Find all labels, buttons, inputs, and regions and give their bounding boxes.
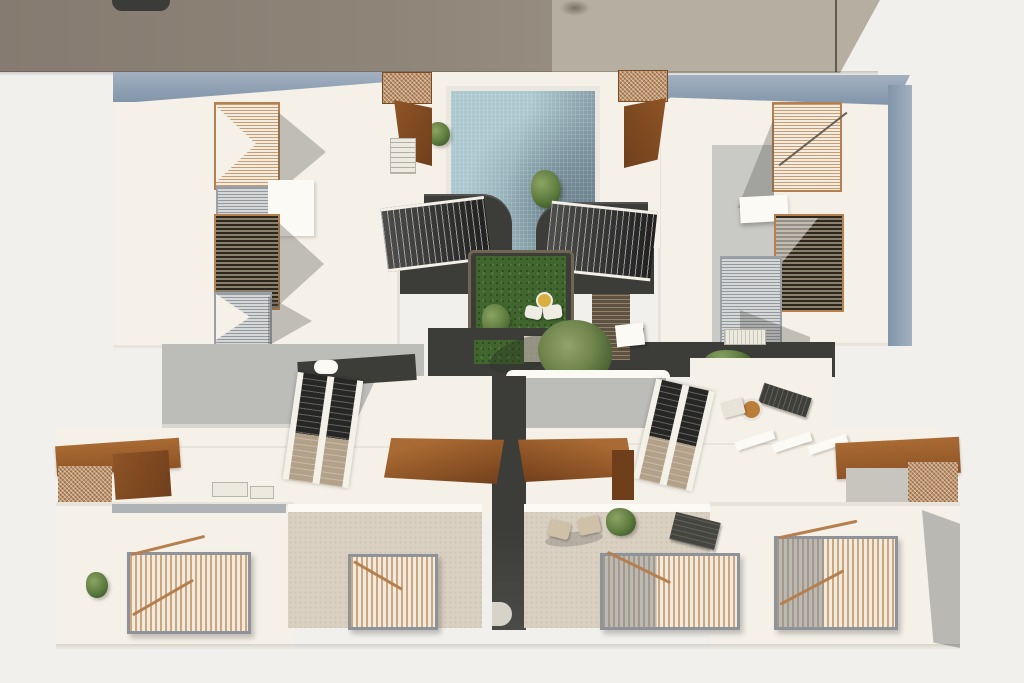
roof-seam <box>835 0 837 72</box>
patio-plant-west <box>86 572 108 598</box>
patio-plant <box>606 508 636 536</box>
stairs-landing-chip <box>314 360 338 374</box>
corten-pergola-1-skirt <box>112 450 171 500</box>
corten-stair-box-west-mesh <box>382 72 432 104</box>
rooftop-vehicle <box>112 0 170 11</box>
lawn-side-table <box>536 292 553 309</box>
wood-pergola-center-right <box>600 553 740 630</box>
corten-pergola-2-canopy <box>384 438 504 484</box>
bench-white <box>615 323 645 348</box>
wood-pergola-southeast <box>774 536 898 630</box>
mini-stairs-west <box>390 138 416 174</box>
aerial-render-canvas <box>0 0 1024 683</box>
corten-pergola-3-skirt <box>612 450 634 500</box>
louver-band-nw <box>216 186 274 216</box>
slat-bench-east <box>724 329 766 345</box>
roof-vent-1 <box>212 482 248 497</box>
wood-pergola-southwest <box>127 552 251 634</box>
roof-shadow-smudge <box>560 0 590 16</box>
parapet-north-right-side <box>888 85 912 346</box>
wall-strip-southwest <box>112 504 286 513</box>
skylight-louver-ne-1 <box>772 102 842 192</box>
units-bottom-shadow <box>56 644 960 650</box>
roof-vent-2 <box>250 486 274 499</box>
corten-stair-box-east-mesh <box>618 70 668 102</box>
neighbor-roof-east <box>552 0 880 73</box>
patio-center-left-parapet <box>288 504 482 512</box>
central-path <box>492 376 526 630</box>
